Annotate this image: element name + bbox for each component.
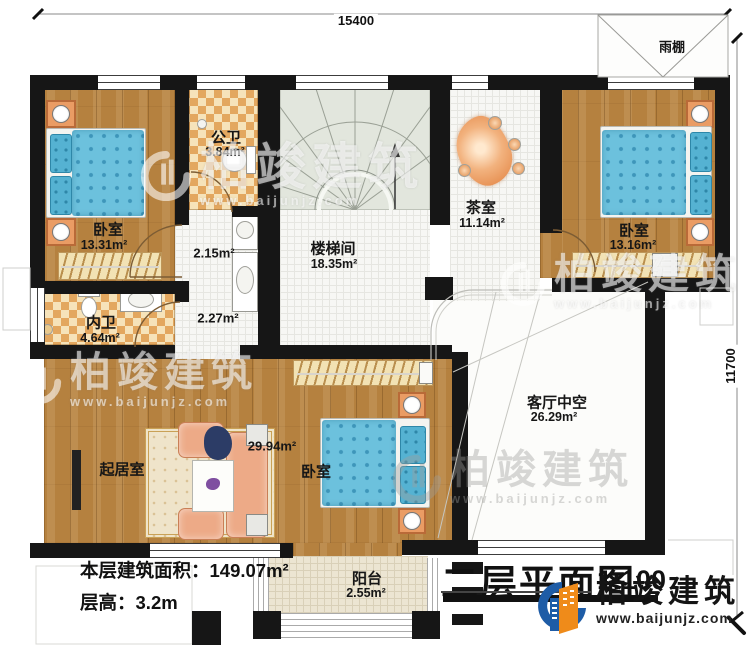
room-area-bedroom1: 13.31m² <box>81 239 128 252</box>
room-area-public-bath: 3.84m² <box>205 146 245 159</box>
area-label-hall-a: 2.15m² <box>193 247 234 260</box>
room-label-bedroom3: 卧室 <box>301 465 331 480</box>
room-area-void: 26.29m² <box>531 411 578 424</box>
room-area-stair-hall: 18.35m² <box>311 258 358 271</box>
area-label-hall-b: 2.27m² <box>197 312 238 325</box>
floor-plan-canvas: 卧室 13.31m² 公卫 3.84m² 楼梯间 18.35m² 茶室 11.1… <box>0 0 750 648</box>
label-rain-canopy: 雨棚 <box>659 41 685 54</box>
room-label-void: 客厅中空 <box>527 396 587 411</box>
room-label-balcony: 阳台 <box>352 572 382 587</box>
floor-height-label: 层高： <box>80 592 136 613</box>
floor-height-line: 层高：3.2m <box>80 589 178 615</box>
brand-url: www.baijunjz.com <box>596 610 740 626</box>
dimension-right: 11700 <box>724 344 738 387</box>
room-label-bedroom2: 卧室 <box>619 224 649 239</box>
brand-logo: 柏竣建筑 www.baijunjz.com <box>534 576 740 638</box>
room-label-public-bath: 公卫 <box>211 131 241 146</box>
dimension-top: 15400 <box>334 14 378 28</box>
room-label-stair-hall: 楼梯间 <box>310 242 355 257</box>
room-label-tea-room: 茶室 <box>466 201 496 216</box>
room-area-bedroom2: 13.16m² <box>610 239 657 252</box>
room-area-private-bath: 4.64m² <box>80 332 120 345</box>
room-label-living: 起居室 <box>99 463 144 478</box>
brand-name: 柏竣建筑 <box>596 576 740 607</box>
floor-area-label: 本层建筑面积： <box>80 560 210 581</box>
room-area-balcony: 2.55m² <box>346 587 386 600</box>
room-label-private-bath: 内卫 <box>86 316 116 331</box>
room-label-bedroom1: 卧室 <box>93 223 123 238</box>
room-area-bedroom3: 29.94m² <box>248 440 296 453</box>
brand-logo-icon <box>534 576 590 638</box>
floor-height-value: 3.2m <box>136 592 178 613</box>
floor-area-line: 本层建筑面积：149.07m² <box>80 557 289 583</box>
room-area-tea-room: 11.14m² <box>459 217 505 230</box>
floor-area-value: 149.07m² <box>210 560 289 581</box>
